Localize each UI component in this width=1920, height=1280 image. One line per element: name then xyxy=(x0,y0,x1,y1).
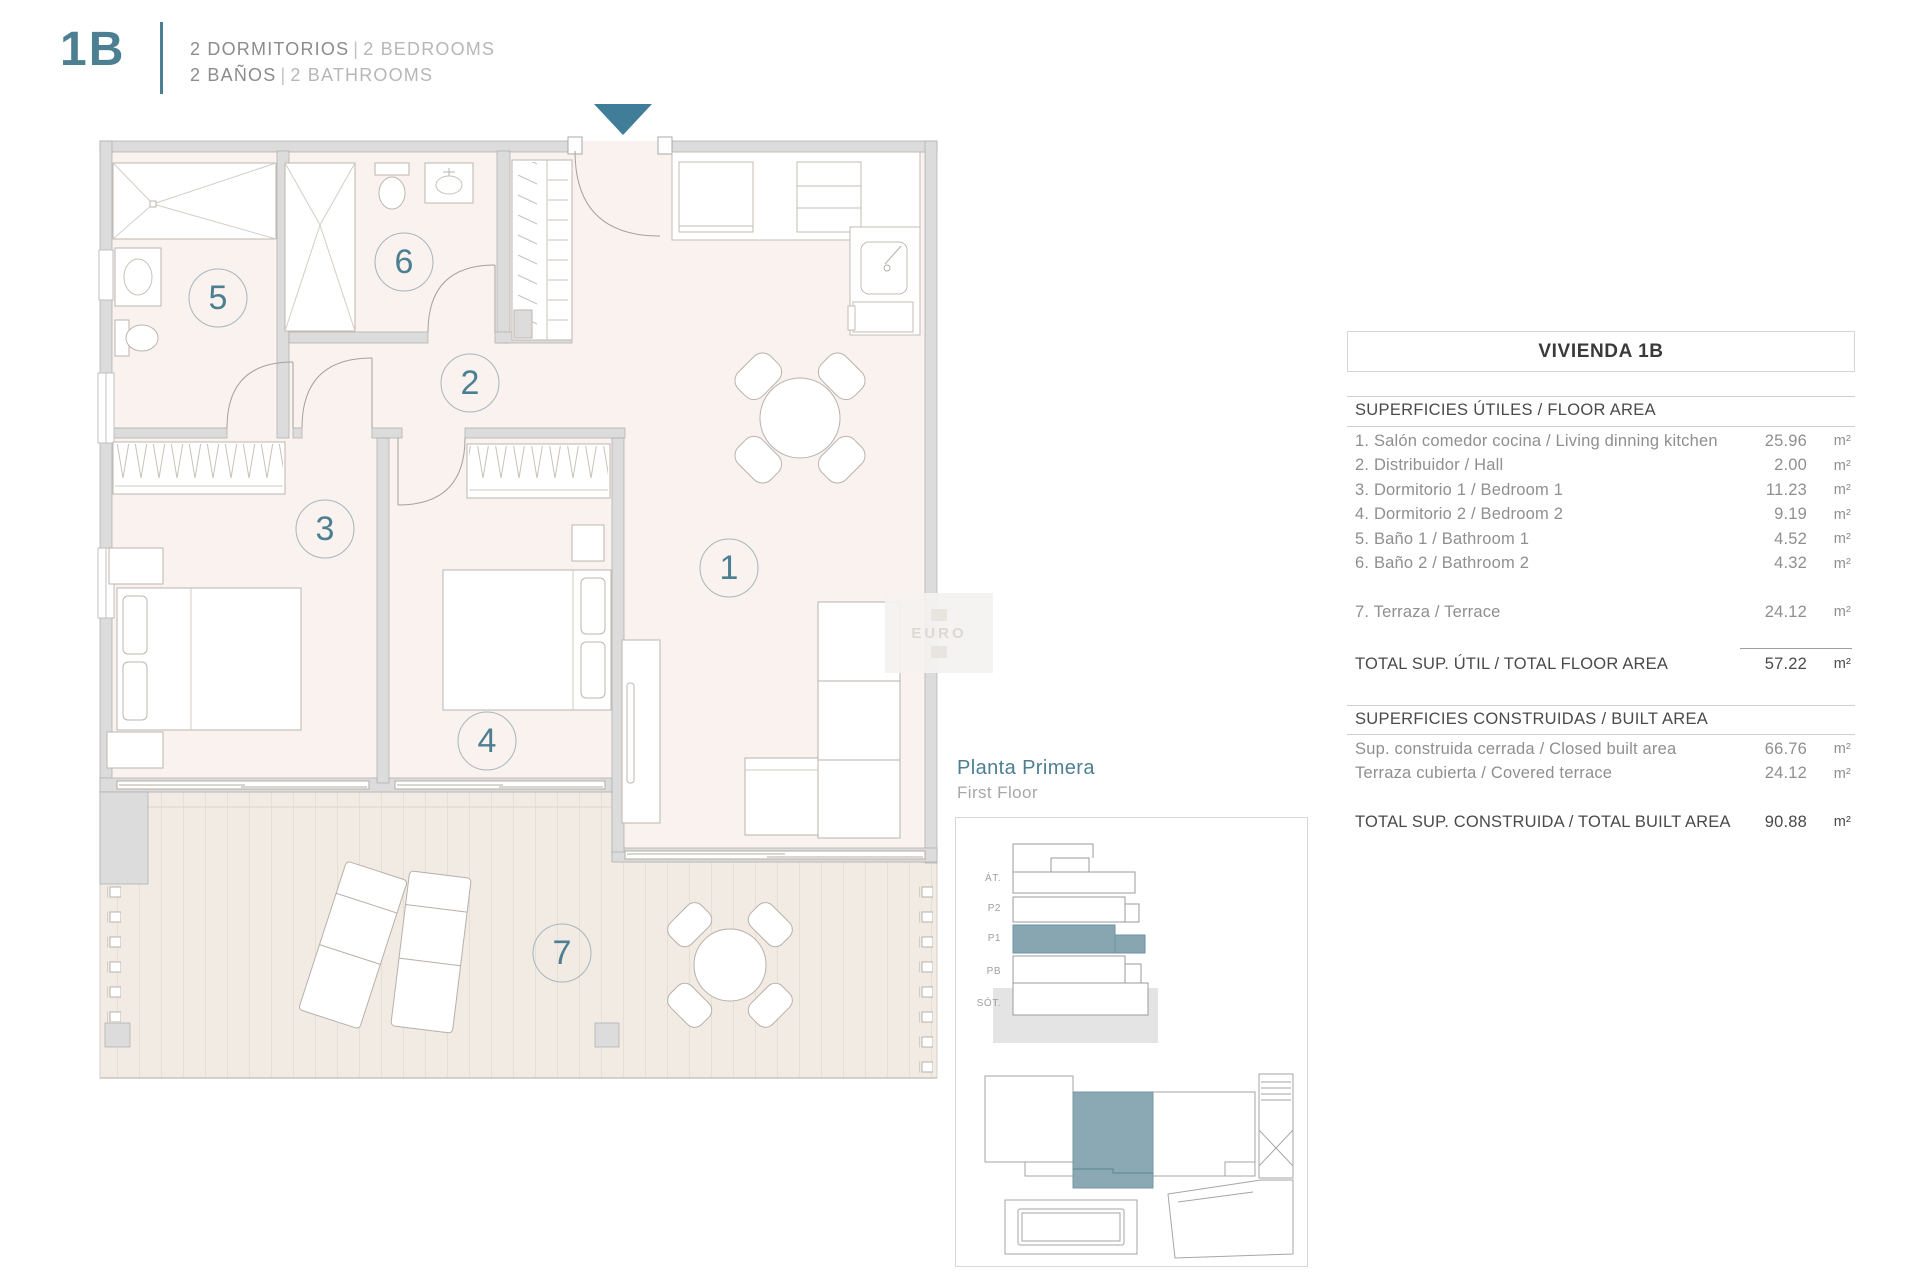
terrace-row: 7. Terraza / Terrace24.12m² xyxy=(1347,600,1855,625)
floor-plan: 1 2 3 4 5 6 7 xyxy=(95,130,945,1085)
area-row: Sup. construida cerrada / Closed built a… xyxy=(1347,737,1855,762)
row-value: 90.88 xyxy=(1737,813,1807,832)
row-value: 4.32 xyxy=(1737,554,1807,573)
floor-label-pb: PB xyxy=(987,966,1001,977)
watermark-square xyxy=(931,609,947,621)
area-row: 4. Dormitorio 2 / Bedroom 29.19m² xyxy=(1347,503,1855,528)
row-unit: m² xyxy=(1807,507,1855,523)
header-line2: 2 BAÑOS|2 BATHROOMS xyxy=(190,62,495,88)
developer-watermark: EURO xyxy=(885,593,993,673)
floor-label-p1: P1 xyxy=(988,933,1001,944)
row-label: 5. Baño 1 / Bathroom 1 xyxy=(1347,530,1737,549)
row-unit: m² xyxy=(1807,458,1855,474)
row-label: 3. Dormitorio 1 / Bedroom 1 xyxy=(1347,481,1737,500)
row-unit: m² xyxy=(1807,556,1855,572)
row-unit: m² xyxy=(1807,482,1855,498)
row-label: Sup. construida cerrada / Closed built a… xyxy=(1347,740,1737,759)
room-label-2: 2 xyxy=(461,364,480,402)
room-label-4: 4 xyxy=(478,722,497,760)
row-value: 9.19 xyxy=(1737,505,1807,524)
room-label-5: 5 xyxy=(209,279,228,317)
site-plan xyxy=(963,1062,1303,1260)
rule xyxy=(1347,734,1855,735)
area-row: 6. Baño 2 / Bathroom 24.32m² xyxy=(1347,552,1855,577)
row-value: 25.96 xyxy=(1737,432,1807,451)
area-row: 5. Baño 1 / Bathroom 14.52m² xyxy=(1347,527,1855,552)
floor-label-p2: P2 xyxy=(988,903,1001,914)
room-label-3: 3 xyxy=(316,510,335,548)
watermark-text: EURO xyxy=(911,625,966,642)
row-value: 11.23 xyxy=(1737,481,1807,500)
row-value: 2.00 xyxy=(1737,456,1807,475)
row-label: 2. Distribuidor / Hall xyxy=(1347,456,1737,475)
row-label: 6. Baño 2 / Bathroom 2 xyxy=(1347,554,1737,573)
room-label-7: 7 xyxy=(553,934,572,972)
row-value: 66.76 xyxy=(1737,740,1807,759)
built-area-heading: SUPERFICIES CONSTRUIDAS / BUILT AREA xyxy=(1355,710,1708,729)
unit-title-box: VIVIENDA 1B xyxy=(1347,331,1855,372)
tv-cabinet xyxy=(622,640,660,823)
row-label: TOTAL SUP. CONSTRUIDA / TOTAL BUILT AREA xyxy=(1347,813,1737,832)
line2-es: 2 BAÑOS xyxy=(190,65,276,85)
area-row: 3. Dormitorio 1 / Bedroom 111.23m² xyxy=(1347,478,1855,503)
floor-label-atico: ÁT. xyxy=(985,871,1001,884)
rule xyxy=(1347,396,1855,397)
row-label: Terraza cubierta / Covered terrace xyxy=(1347,764,1737,783)
row-value: 57.22 xyxy=(1737,655,1807,674)
room-label-1: 1 xyxy=(720,549,739,587)
total-rule xyxy=(1740,648,1852,649)
area-row: 2. Distribuidor / Hall2.00m² xyxy=(1347,454,1855,479)
row-unit: m² xyxy=(1807,741,1855,757)
row-unit: m² xyxy=(1807,814,1855,830)
line1-es: 2 DORMITORIOS xyxy=(190,39,349,59)
bedroom-4-furniture xyxy=(443,444,611,710)
area-table: VIVIENDA 1B SUPERFICIES ÚTILES / FLOOR A… xyxy=(1347,331,1855,372)
line2-en: 2 BATHROOMS xyxy=(290,65,433,85)
area-row: 1. Salón comedor cocina / Living dinning… xyxy=(1347,429,1855,454)
row-unit: m² xyxy=(1807,433,1855,449)
line1-sep: | xyxy=(349,39,363,59)
floor-title-en: First Floor xyxy=(957,783,1038,803)
floor-area-heading: SUPERFICIES ÚTILES / FLOOR AREA xyxy=(1355,401,1656,420)
line1-en: 2 BEDROOMS xyxy=(363,39,495,59)
row-value: 24.12 xyxy=(1737,764,1807,783)
area-row: Terraza cubierta / Covered terrace24.12m… xyxy=(1347,762,1855,787)
row-unit: m² xyxy=(1807,656,1855,672)
unit-code: 1B xyxy=(60,22,125,77)
building-elevation: ÁT. P2 P1 PB SÓT. xyxy=(963,838,1303,1063)
plan-sheet: 1B 2 DORMITORIOS|2 BEDROOMS 2 BAÑOS|2 BA… xyxy=(0,0,1920,1280)
room-label-6: 6 xyxy=(395,243,414,281)
header-subtitle: 2 DORMITORIOS|2 BEDROOMS 2 BAÑOS|2 BATHR… xyxy=(190,36,495,88)
entry-closet xyxy=(512,160,572,340)
watermark-square xyxy=(931,646,947,658)
floor-title-es: Planta Primera xyxy=(957,757,1095,780)
total-built-area-row: TOTAL SUP. CONSTRUIDA / TOTAL BUILT AREA… xyxy=(1347,810,1855,835)
unit-title: VIVIENDA 1B xyxy=(1538,341,1663,363)
row-label: 1. Salón comedor cocina / Living dinning… xyxy=(1347,432,1737,451)
floor-label-sotano: SÓT. xyxy=(977,996,1001,1009)
row-label: 4. Dormitorio 2 / Bedroom 2 xyxy=(1347,505,1737,524)
row-unit: m² xyxy=(1807,531,1855,547)
row-unit: m² xyxy=(1807,604,1855,620)
total-floor-area-row: TOTAL SUP. ÚTIL / TOTAL FLOOR AREA57.22m… xyxy=(1347,652,1855,677)
rule xyxy=(1347,426,1855,427)
row-value: 4.52 xyxy=(1737,530,1807,549)
row-label: TOTAL SUP. ÚTIL / TOTAL FLOOR AREA xyxy=(1347,655,1737,674)
row-label: 7. Terraza / Terrace xyxy=(1347,603,1737,622)
bedroom-3-furniture xyxy=(107,442,301,768)
row-value: 24.12 xyxy=(1737,603,1807,622)
header-line1: 2 DORMITORIOS|2 BEDROOMS xyxy=(190,36,495,62)
header-divider xyxy=(160,22,163,94)
rule xyxy=(1347,705,1855,706)
row-unit: m² xyxy=(1807,766,1855,782)
line2-sep: | xyxy=(276,65,290,85)
